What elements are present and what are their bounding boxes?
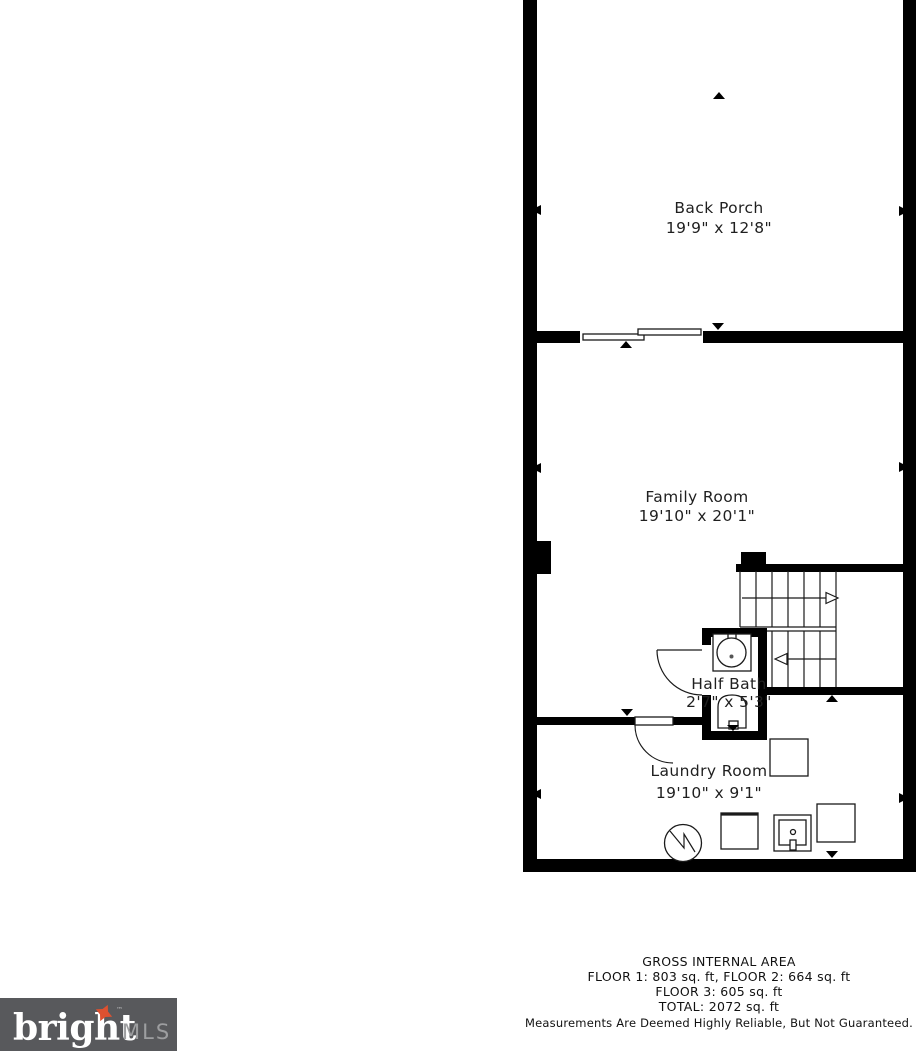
wall-porch-divider-left: [523, 331, 580, 343]
walls: [523, 0, 916, 872]
laundry-room-dimensions: 19'10" x 9'1": [656, 784, 762, 802]
floor-plan-canvas: Back Porch 19'9" x 12'8" Family Room 19'…: [0, 0, 916, 1055]
area-summary-disclaimer: Measurements Are Deemed Highly Reliable,…: [525, 1016, 913, 1030]
storage-box-icon: [770, 739, 808, 776]
family-room-dimensions: 19'10" x 20'1": [639, 507, 755, 525]
brightmls-logo: bright ™ MLS: [0, 998, 177, 1051]
sliding-door-icon: [583, 329, 701, 340]
stairs-post-block: [741, 552, 766, 565]
washer-icon: [774, 815, 811, 851]
area-summary: GROSS INTERNAL AREA FLOOR 1: 803 sq. ft,…: [525, 954, 913, 1030]
laundry-room-label: Laundry Room: [650, 762, 767, 780]
stairs-down-arrow-icon: [775, 654, 836, 665]
half-bath-dimensions: 2'7" x 5'3": [686, 693, 772, 711]
water-heater-icon: [665, 825, 702, 862]
direction-marker-icon: [826, 695, 838, 702]
wall-laundry-divider-right: [673, 717, 702, 725]
dryer-icon: [721, 813, 758, 849]
wall-left: [523, 0, 537, 872]
direction-marker-icon: [621, 709, 633, 716]
sink-icon: [713, 634, 751, 671]
logo-trademark: ™: [116, 1006, 123, 1014]
direction-marker-icon: [826, 851, 838, 858]
wall-stairs-bottom: [758, 687, 916, 695]
wall-stairs-top: [736, 564, 916, 572]
wall-halfbath-left-upper: [702, 628, 711, 645]
pillar-left-wall: [537, 541, 551, 574]
wall-right: [903, 0, 916, 872]
back-porch-label: Back Porch: [674, 199, 763, 217]
laundry-door-swing-icon: [635, 717, 673, 763]
back-porch-dimensions: 19'9" x 12'8": [666, 219, 772, 237]
area-summary-title: GROSS INTERNAL AREA: [642, 954, 796, 969]
wall-laundry-divider-left: [523, 717, 635, 725]
area-summary-floors-2: FLOOR 3: 605 sq. ft: [655, 984, 782, 999]
direction-marker-icon: [620, 341, 632, 348]
half-bath-label: Half Bath: [691, 675, 766, 693]
family-room-label: Family Room: [645, 488, 748, 506]
wall-halfbath-bottom: [702, 731, 767, 740]
area-summary-total: TOTAL: 2072 sq. ft: [658, 999, 780, 1014]
wall-bottom: [523, 859, 916, 872]
floor-plan-page: Back Porch 19'9" x 12'8" Family Room 19'…: [0, 0, 916, 1055]
wall-porch-divider-right: [703, 331, 916, 343]
utility-box-icon: [817, 804, 855, 842]
direction-marker-icon: [712, 323, 724, 330]
logo-mls-text: MLS: [122, 1020, 171, 1044]
direction-marker-icon: [713, 92, 725, 99]
area-summary-floors-1: FLOOR 1: 803 sq. ft, FLOOR 2: 664 sq. ft: [588, 969, 851, 984]
